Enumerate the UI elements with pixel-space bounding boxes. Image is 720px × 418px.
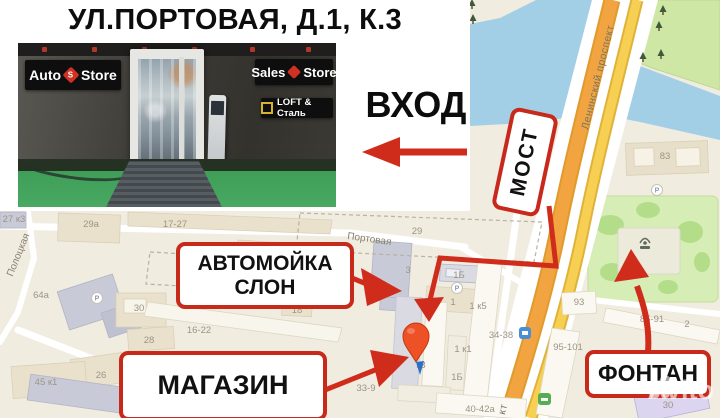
svg-text:95-101: 95-101 [553,342,583,353]
svg-text:1Б: 1Б [453,270,465,281]
svg-text:45 к1: 45 к1 [35,377,58,388]
auto-store-sign: Auto S Store [25,60,121,90]
callout-bridge-label: МОСТ [507,126,544,199]
svg-text:83: 83 [660,151,671,162]
svg-text:1 к1: 1 к1 [454,344,471,355]
callout-shop: МАГАЗИН [119,351,327,418]
entrance-label: ВХОД [364,84,468,126]
svg-text:к3: к3 [416,360,425,371]
auto-store-word1: Auto [29,67,61,83]
ad-image: P P P Ленинский проспект кт Портовая Пол… [0,0,720,418]
svg-text:29а: 29а [83,219,100,230]
svg-text:P: P [455,286,460,293]
svg-text:P: P [655,188,660,195]
storefront-photo: Auto S Store Sales Store LOFT & Сталь [18,43,336,207]
auto-store-word2: Store [81,67,117,83]
callout-carwash-line2: СЛОН [235,276,296,299]
callout-carwash-line1: АВТОМОЙКА [197,252,332,275]
loft-steel-sign: LOFT & Сталь [261,98,333,118]
svg-text:85-91: 85-91 [640,314,664,325]
sales-store-word2: Store [303,65,336,80]
svg-text:2: 2 [684,319,689,330]
svg-text:17-27: 17-27 [163,219,187,230]
svg-text:30: 30 [134,303,145,314]
loft-logo-icon [261,102,273,114]
address-title: УЛ.ПОРТОВАЯ, Д.1, К.3 [0,4,470,37]
svg-text:64а: 64а [33,290,50,301]
callout-shop-label: МАГАЗИН [158,371,289,401]
sales-store-word1: Sales [251,65,285,80]
svg-text:33-9: 33-9 [356,383,375,394]
avito-watermark: Avito [648,375,715,406]
svg-text:27 к3: 27 к3 [3,214,26,225]
info-panel: УЛ.ПОРТОВАЯ, Д.1, К.3 Auto S Store Sales… [0,0,470,211]
svg-text:40-42а: 40-42а [465,404,495,415]
svg-text:28: 28 [144,335,155,346]
svg-text:P: P [95,296,100,303]
sales-store-logo-icon [287,65,301,79]
avito-logo-icon [648,375,676,401]
sales-store-sign: Sales Store [255,59,333,85]
svg-text:1 к5: 1 к5 [469,301,486,312]
svg-text:3: 3 [405,265,410,276]
svg-text:34-38: 34-38 [489,330,513,341]
svg-text:26: 26 [96,370,107,381]
callout-carwash: АВТОМОЙКА СЛОН [176,242,354,309]
loft-steel-label: LOFT & Сталь [277,97,333,119]
svg-text:1: 1 [450,297,455,308]
svg-text:16-22: 16-22 [187,325,211,336]
svg-text:1Б: 1Б [451,372,463,383]
svg-text:93: 93 [574,297,585,308]
auto-store-logo-icon: S [63,67,80,84]
svg-text:29: 29 [412,226,423,237]
